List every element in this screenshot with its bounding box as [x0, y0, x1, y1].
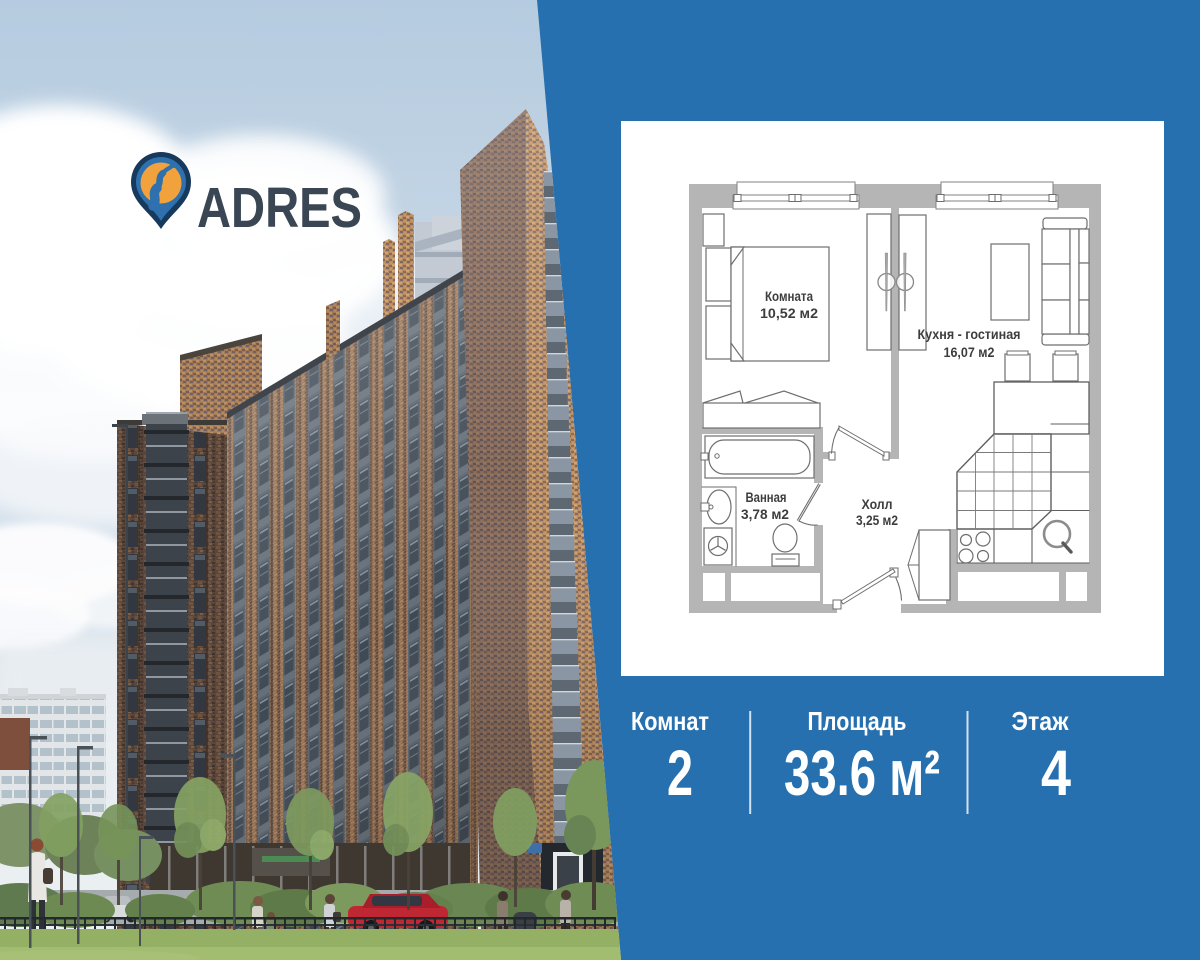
- svg-text:4: 4: [1041, 737, 1071, 809]
- svg-text:Комната: Комната: [765, 288, 813, 304]
- svg-text:3,78 м2: 3,78 м2: [741, 506, 789, 522]
- svg-text:Этаж: Этаж: [1012, 706, 1070, 736]
- svg-text:Холл: Холл: [862, 496, 893, 512]
- svg-text:Ванная: Ванная: [746, 489, 787, 505]
- svg-text:2: 2: [667, 737, 693, 809]
- svg-text:10,52 м2: 10,52 м2: [760, 305, 818, 321]
- svg-text:Площадь: Площадь: [808, 706, 907, 736]
- svg-text:ADRES: ADRES: [197, 176, 362, 240]
- svg-text:33.6 м²: 33.6 м²: [784, 737, 940, 809]
- svg-text:3,25 м2: 3,25 м2: [856, 512, 898, 528]
- svg-text:Кухня - гостиная: Кухня - гостиная: [918, 326, 1021, 342]
- svg-text:16,07 м2: 16,07 м2: [944, 344, 995, 360]
- svg-text:Комнат: Комнат: [631, 706, 709, 736]
